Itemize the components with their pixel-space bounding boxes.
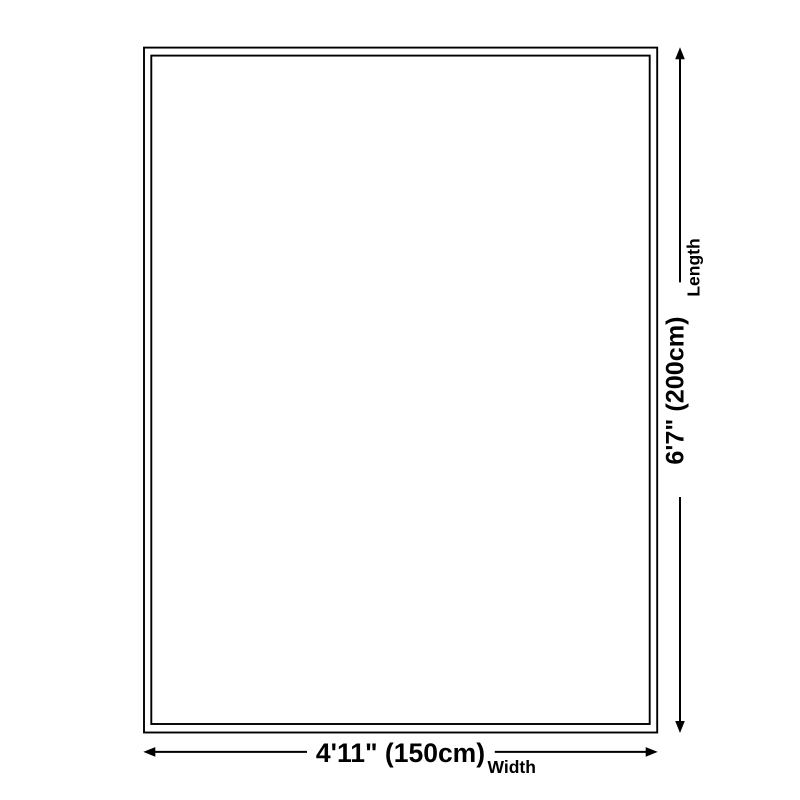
svg-text:4'11" (150cm): 4'11" (150cm) — [316, 738, 485, 768]
svg-text:6'7" (200cm): 6'7" (200cm) — [662, 316, 690, 464]
svg-text:Length: Length — [684, 238, 704, 296]
svg-text:Width: Width — [488, 757, 536, 777]
